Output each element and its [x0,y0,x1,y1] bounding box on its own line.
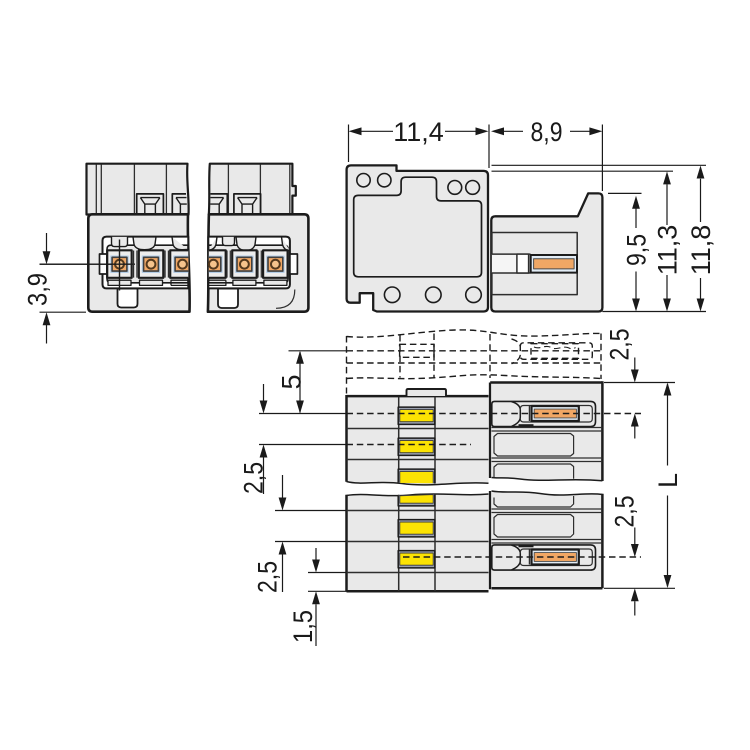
svg-text:2,5: 2,5 [605,329,635,361]
svg-text:5: 5 [277,374,307,389]
svg-text:9,5: 9,5 [622,234,652,266]
svg-text:8,9: 8,9 [531,117,563,147]
svg-text:2,5: 2,5 [610,496,640,528]
svg-text:3,9: 3,9 [23,273,53,306]
svg-text:2,5: 2,5 [253,561,283,593]
svg-text:1,5: 1,5 [288,610,318,643]
svg-text:11,8: 11,8 [686,225,716,276]
svg-text:L: L [653,473,683,488]
svg-text:11,3: 11,3 [653,225,683,276]
svg-text:11,4: 11,4 [393,117,444,147]
svg-text:2,5: 2,5 [239,462,269,494]
